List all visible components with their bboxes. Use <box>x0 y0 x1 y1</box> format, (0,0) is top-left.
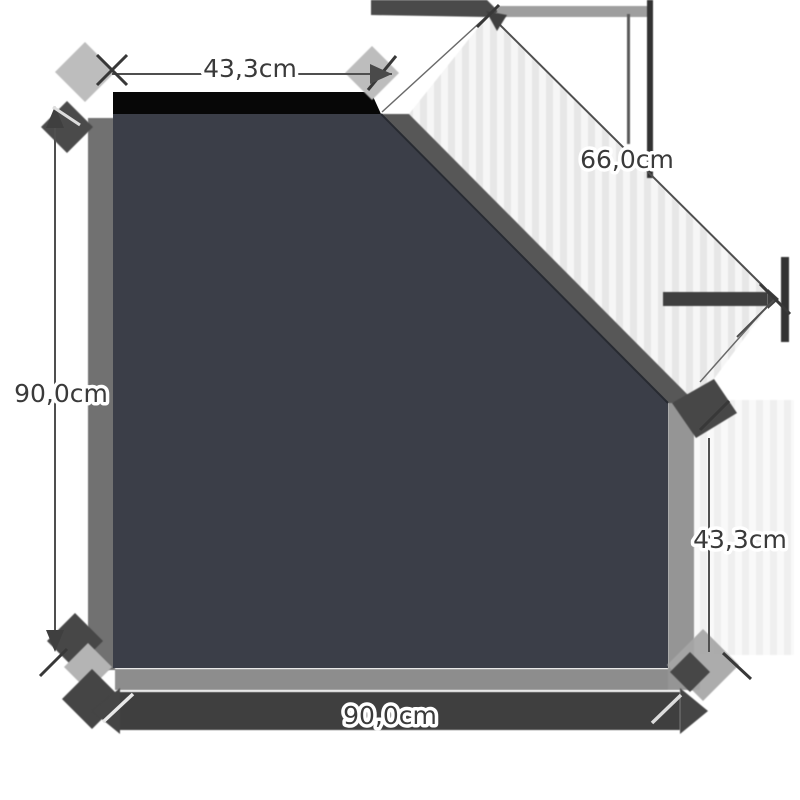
plate-top-shadow <box>113 92 381 114</box>
dimension-drawing: 43,3cm 66,0cm 90,0cm 43,3cm 90,0cm <box>0 0 800 800</box>
arrow-blob-light <box>55 42 115 102</box>
dimension-label-left: 90,0cm <box>14 379 108 408</box>
end-extension-bar <box>781 257 789 342</box>
cropped-extension-line-thin <box>627 14 630 144</box>
tick-mark <box>40 649 67 676</box>
dimension-label-right: 43,3cm <box>693 525 787 554</box>
dimension-drawing-canvas: 43,3cm 66,0cm 90,0cm 43,3cm 90,0cm <box>0 0 800 800</box>
dimension-label-top: 43,3cm <box>203 54 297 83</box>
end-bar <box>663 292 768 306</box>
dimension-label-bottom: 90,0cm <box>343 701 437 730</box>
bottom-shadow-band <box>115 669 700 690</box>
cropped-gray-band <box>497 6 647 17</box>
cropped-dim-bar <box>371 0 499 17</box>
dimension-label-diagonal: 66,0cm <box>580 145 674 174</box>
